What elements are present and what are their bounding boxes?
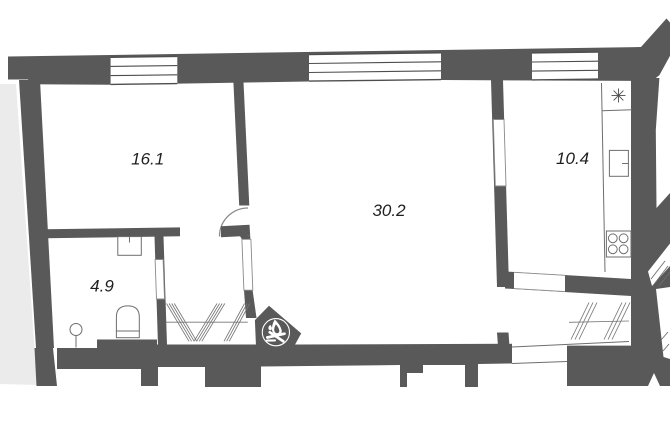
svg-text:16.1: 16.1 <box>131 150 164 169</box>
svg-text:30.2: 30.2 <box>372 201 406 220</box>
svg-text:4.9: 4.9 <box>90 277 114 296</box>
svg-text:10.4: 10.4 <box>556 149 589 168</box>
